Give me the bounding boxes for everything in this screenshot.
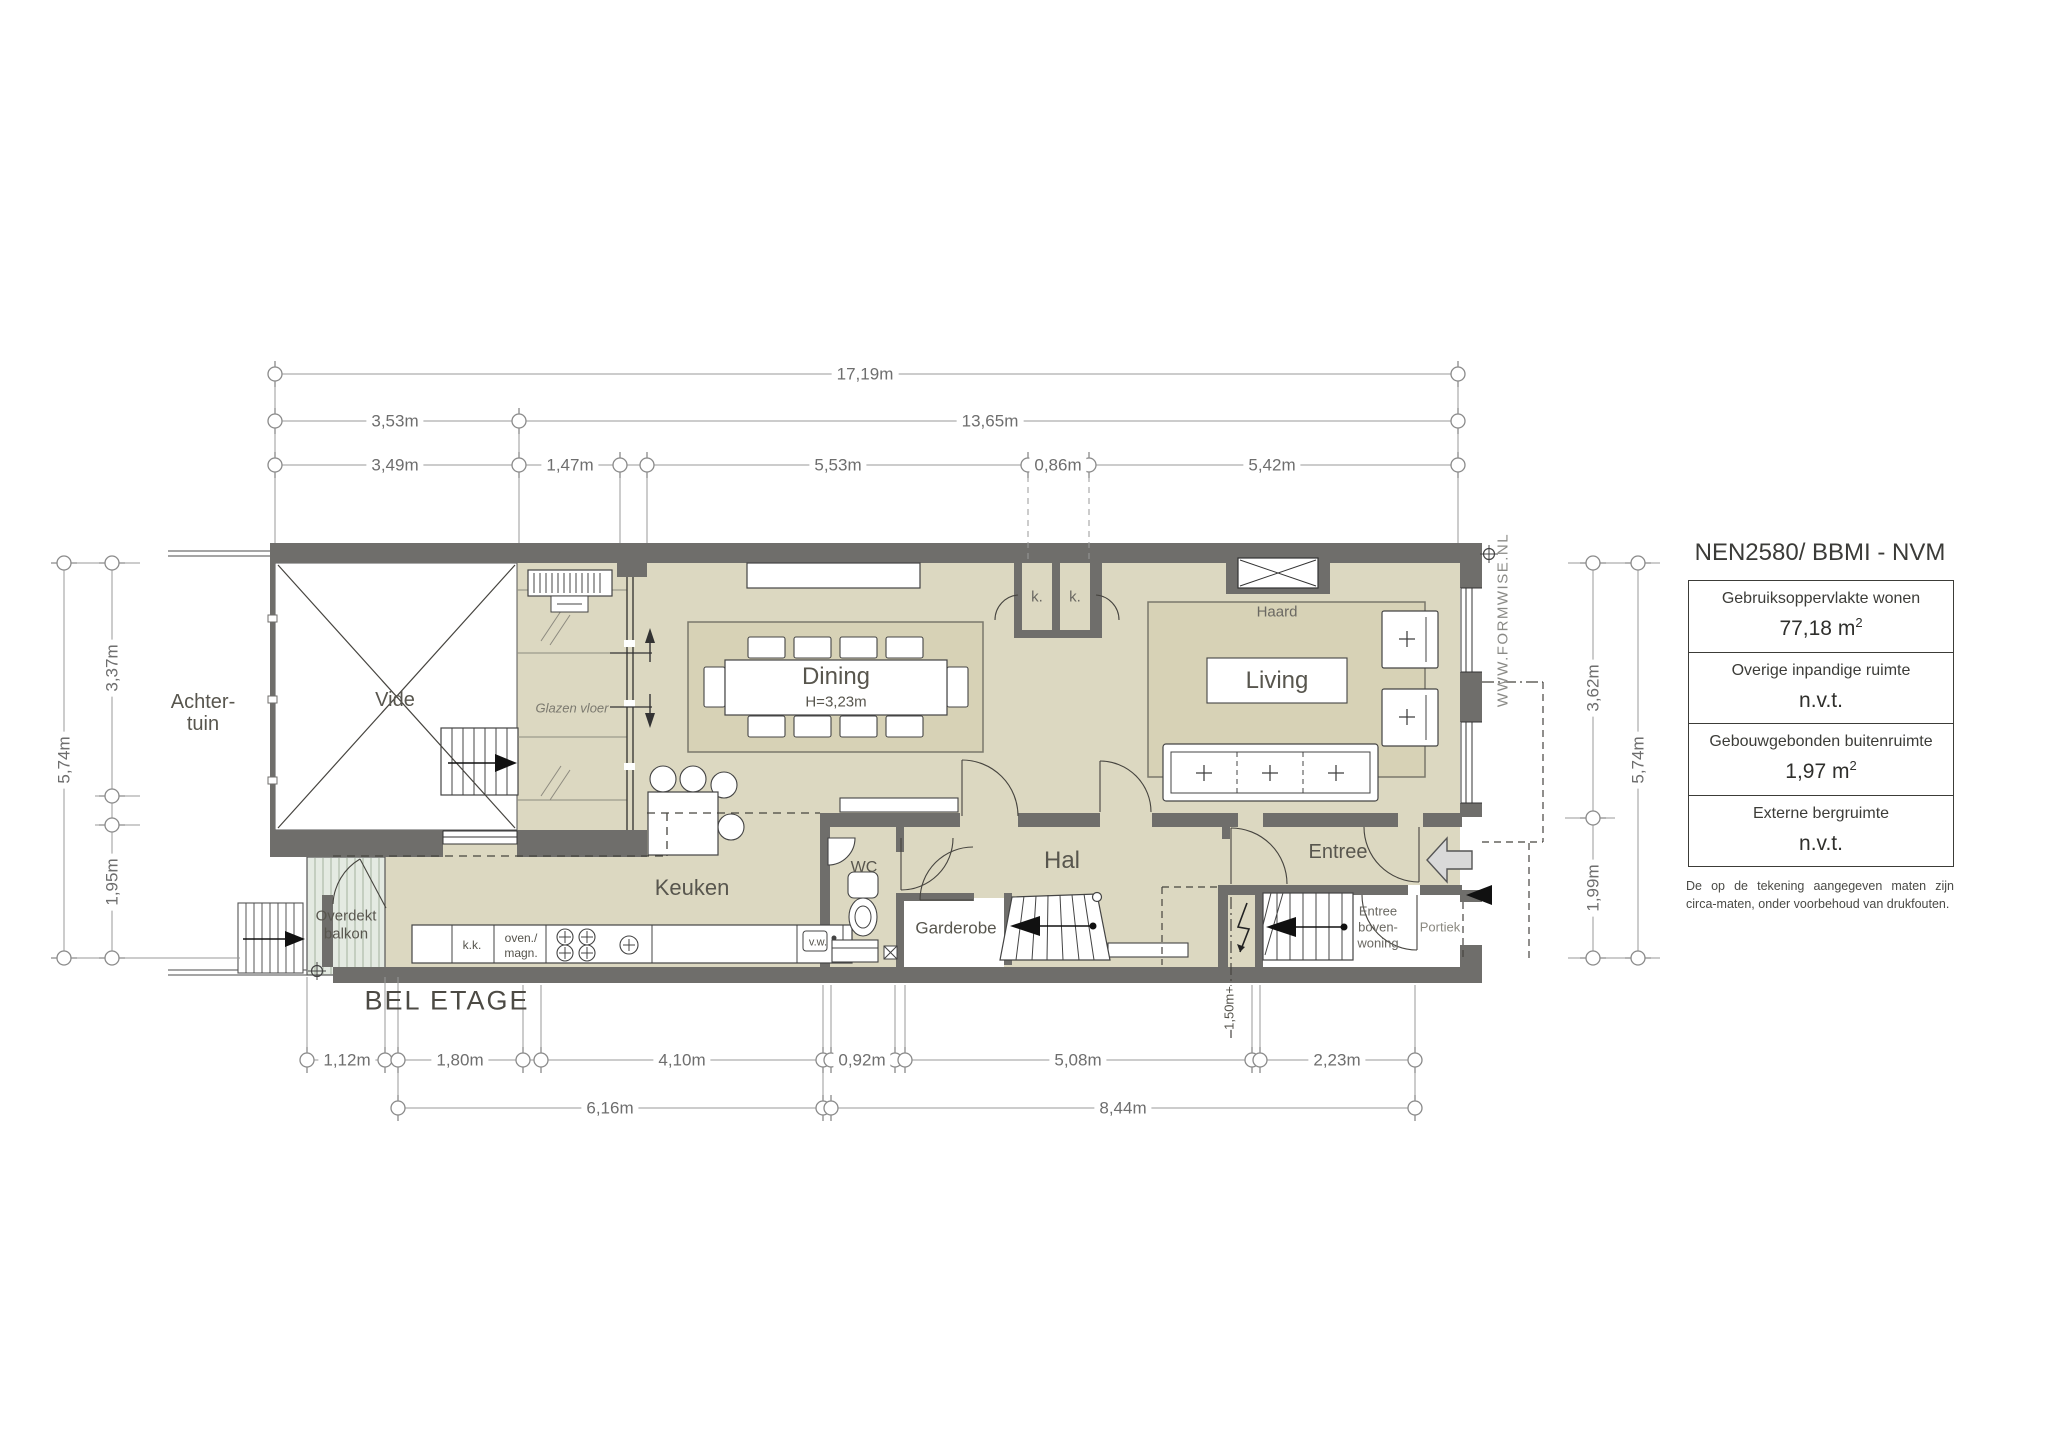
floorplan-canvas: Achter- tuin Vide Glazen vloer Dining H=… <box>0 0 2048 1448</box>
dim-top-147: 1,47m <box>541 457 598 474</box>
label-achtertuin-line2: tuin <box>187 714 219 734</box>
label-closet-2: k. <box>1069 590 1081 605</box>
legend-row-wonen: Gebruiksoppervlakte wonen 77,18 m2 <box>1689 581 1953 653</box>
dim-bottom-508: 5,08m <box>1049 1052 1106 1069</box>
legend-table: Gebruiksoppervlakte wonen 77,18 m2 Overi… <box>1688 580 1954 867</box>
label-kitchen-vw: v.w. <box>809 938 827 949</box>
legend-row-bergruimte: Externe bergruimte n.v.t. <box>1689 796 1953 867</box>
label-entree-boven-line1: Entree <box>1359 905 1397 918</box>
label-stair-height: 1,50m+ <box>1223 986 1236 1030</box>
legend-row-overig: Overige inpandige ruimte n.v.t. <box>1689 653 1953 725</box>
label-achtertuin-line1: Achter- <box>171 692 235 712</box>
label-kitchen-kk: k.k. <box>463 939 482 951</box>
label-entree-boven-line3: woning <box>1357 937 1398 950</box>
legend-footnote: De op de tekening aangegeven maten zijn … <box>1686 878 1954 913</box>
dim-bottom-844: 8,44m <box>1094 1100 1151 1117</box>
legend-title: NEN2580/ BBMI - NVM <box>1695 539 1946 567</box>
label-vide: Vide <box>375 690 415 710</box>
label-balkon-line1: Overdekt <box>316 909 377 924</box>
dim-right-574: 5,74m <box>1630 731 1647 788</box>
dim-right-362: 3,62m <box>1585 659 1602 716</box>
dim-bottom-180: 1,80m <box>431 1052 488 1069</box>
legend-row-label: Overige inpandige ruimte <box>1689 653 1953 680</box>
dim-bottom-112: 1,12m <box>318 1052 375 1069</box>
legend-row-value: n.v.t. <box>1689 680 1953 713</box>
label-keuken: Keuken <box>655 877 730 899</box>
legend-row-value: n.v.t. <box>1689 823 1953 856</box>
label-garderobe: Garderobe <box>915 920 996 937</box>
legend-row-buitenruimte: Gebouwgebonden buitenruimte 1,97 m2 <box>1689 724 1953 796</box>
dim-top-349: 3,49m <box>366 457 423 474</box>
label-entree: Entree <box>1309 842 1368 862</box>
watermark-text: WWW.FORMWISE.NL <box>1496 533 1511 707</box>
label-kitchen-oven-line2: magn. <box>504 947 537 959</box>
legend-row-label: Externe bergruimte <box>1689 796 1953 823</box>
label-living: Living <box>1246 669 1309 693</box>
dim-right-199: 1,99m <box>1585 859 1602 916</box>
label-hal: Hal <box>1044 849 1080 873</box>
dim-left-337: 3,37m <box>104 639 121 696</box>
label-kitchen-oven-line1: oven./ <box>505 932 538 944</box>
label-dining: Dining <box>802 665 870 689</box>
label-portiek: Portiek <box>1420 921 1460 934</box>
label-glazen-vloer: Glazen vloer <box>536 702 609 715</box>
dim-bottom-223: 2,23m <box>1308 1052 1365 1069</box>
label-balkon-line2: balkon <box>324 927 368 942</box>
dim-top-353: 3,53m <box>366 413 423 430</box>
dim-top-553: 5,53m <box>809 457 866 474</box>
dim-top-1365: 13,65m <box>957 413 1024 430</box>
label-haard: Haard <box>1257 605 1298 620</box>
dim-bottom-410: 4,10m <box>653 1052 710 1069</box>
label-closet-1: k. <box>1031 590 1043 605</box>
dim-top-total: 17,19m <box>832 366 899 383</box>
label-wc: WC <box>851 860 878 876</box>
dim-top-542: 5,42m <box>1243 457 1300 474</box>
dim-left-574: 5,74m <box>56 731 73 788</box>
plan-title: BEL ETAGE <box>364 986 529 1017</box>
legend-row-value: 1,97 m2 <box>1689 751 1953 784</box>
dim-top-086: 0,86m <box>1029 457 1086 474</box>
dim-bottom-616: 6,16m <box>581 1100 638 1117</box>
label-dining-height: H=3,23m <box>805 695 866 710</box>
legend-row-label: Gebruiksoppervlakte wonen <box>1689 581 1953 608</box>
legend-row-value: 77,18 m2 <box>1689 608 1953 641</box>
dim-bottom-092: 0,92m <box>833 1052 890 1069</box>
label-entree-boven-line2: boven- <box>1358 921 1398 934</box>
dim-left-195: 1,95m <box>104 853 121 910</box>
legend-row-label: Gebouwgebonden buitenruimte <box>1689 724 1953 751</box>
